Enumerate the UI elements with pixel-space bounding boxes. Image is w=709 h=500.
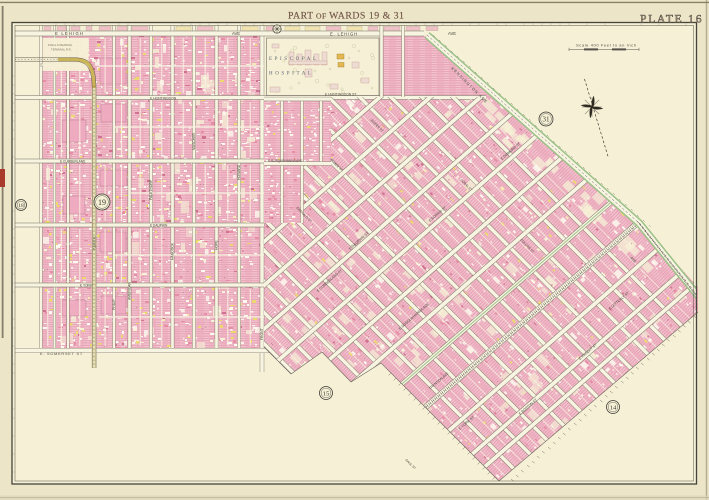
- svg-text:E SUSQUEHANNA AVE: E SUSQUEHANNA AVE: [268, 159, 302, 163]
- svg-text:MASCHER: MASCHER: [192, 132, 196, 150]
- svg-text:HOPE: HOPE: [215, 240, 219, 250]
- svg-text:PALETHORP: PALETHORP: [149, 179, 153, 200]
- svg-text:AMERICAN: AMERICAN: [128, 282, 132, 300]
- svg-text:E DAUPHIN: E DAUPHIN: [150, 224, 168, 228]
- svg-text:EPISCOPAL: EPISCOPAL: [269, 57, 319, 62]
- svg-text:14: 14: [610, 404, 617, 411]
- svg-text:31: 31: [543, 116, 551, 124]
- svg-text:HOSPITAL: HOSPITAL: [269, 72, 314, 77]
- svg-text:PHILA.& READING: PHILA.& READING: [48, 43, 72, 47]
- svg-text:AVE: AVE: [232, 31, 240, 36]
- svg-text:PLATE 16: PLATE 16: [640, 14, 703, 26]
- svg-text:PART OF WARDS 19 & 31: PART OF WARDS 19 & 31: [288, 11, 404, 22]
- svg-text:HANCOCK: HANCOCK: [171, 242, 175, 260]
- svg-text:Scale 400 Feet to an Inch: Scale 400 Feet to an Inch: [576, 43, 637, 48]
- svg-text:TERMINAL R.R.: TERMINAL R.R.: [51, 48, 72, 52]
- svg-text:E HUNTINGDON ST: E HUNTINGDON ST: [325, 93, 356, 97]
- svg-text:HOWARD: HOWARD: [237, 164, 241, 180]
- svg-text:E. LEHIGH: E. LEHIGH: [330, 32, 358, 37]
- svg-text:E. SOMERSET ST: E. SOMERSET ST: [40, 352, 83, 356]
- svg-text:FRONT: FRONT: [260, 328, 264, 340]
- svg-text:15: 15: [323, 390, 330, 397]
- svg-text:AVE: AVE: [448, 31, 456, 36]
- svg-text:E HUNTINGDON: E HUNTINGDON: [150, 96, 177, 100]
- svg-text:19: 19: [98, 198, 106, 207]
- svg-text:P.&R.R.R.: P.&R.R.R.: [93, 236, 97, 250]
- svg-text:E YORK: E YORK: [80, 284, 93, 288]
- svg-text:E LEHIGH: E LEHIGH: [55, 31, 84, 36]
- svg-text:PHILIP: PHILIP: [112, 299, 116, 310]
- svg-text:E CUMBERLAND: E CUMBERLAND: [60, 160, 86, 164]
- svg-text:18: 18: [18, 203, 24, 209]
